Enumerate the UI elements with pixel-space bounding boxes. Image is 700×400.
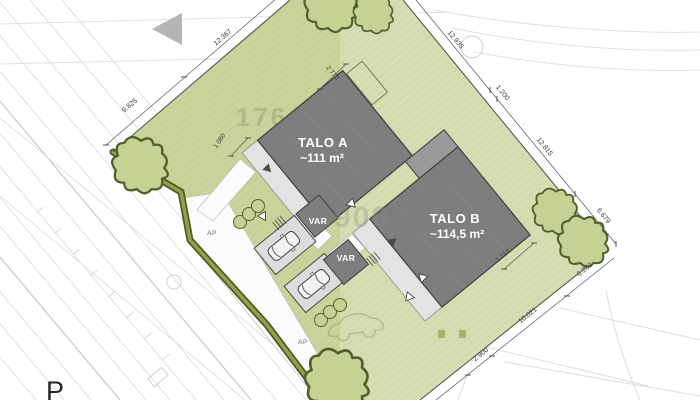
manhole-circle: [461, 36, 483, 58]
ap-1-label: AP: [207, 230, 217, 237]
basemap-embankment-ticks: [37, 207, 170, 360]
tree-icon: [112, 137, 168, 193]
north-arrow-icon: [152, 13, 182, 45]
basemap-road-lines-topright: [434, 10, 700, 70]
dim-ne-3: 12.815: [535, 137, 554, 158]
dim-nw-1: 9.825: [121, 97, 139, 114]
ghost-base-number: 900: [334, 201, 390, 234]
var-1-label: VAR: [309, 216, 328, 226]
talo-b-area: ~114,5 m²: [430, 227, 484, 241]
corner-p-label: P: [46, 376, 64, 400]
site-plan-drawing: 176: [0, 0, 700, 400]
var-2-label: VAR: [337, 253, 356, 263]
site-plan-canvas: 176: [0, 0, 700, 400]
ap-2-label: AP: [298, 339, 308, 346]
talo-a-name: TALO A: [298, 135, 348, 150]
talo-a-area: ~111 m²: [300, 151, 344, 165]
talo-b-name: TALO B: [430, 211, 480, 226]
dim-ne-2: 1.200: [494, 84, 511, 102]
